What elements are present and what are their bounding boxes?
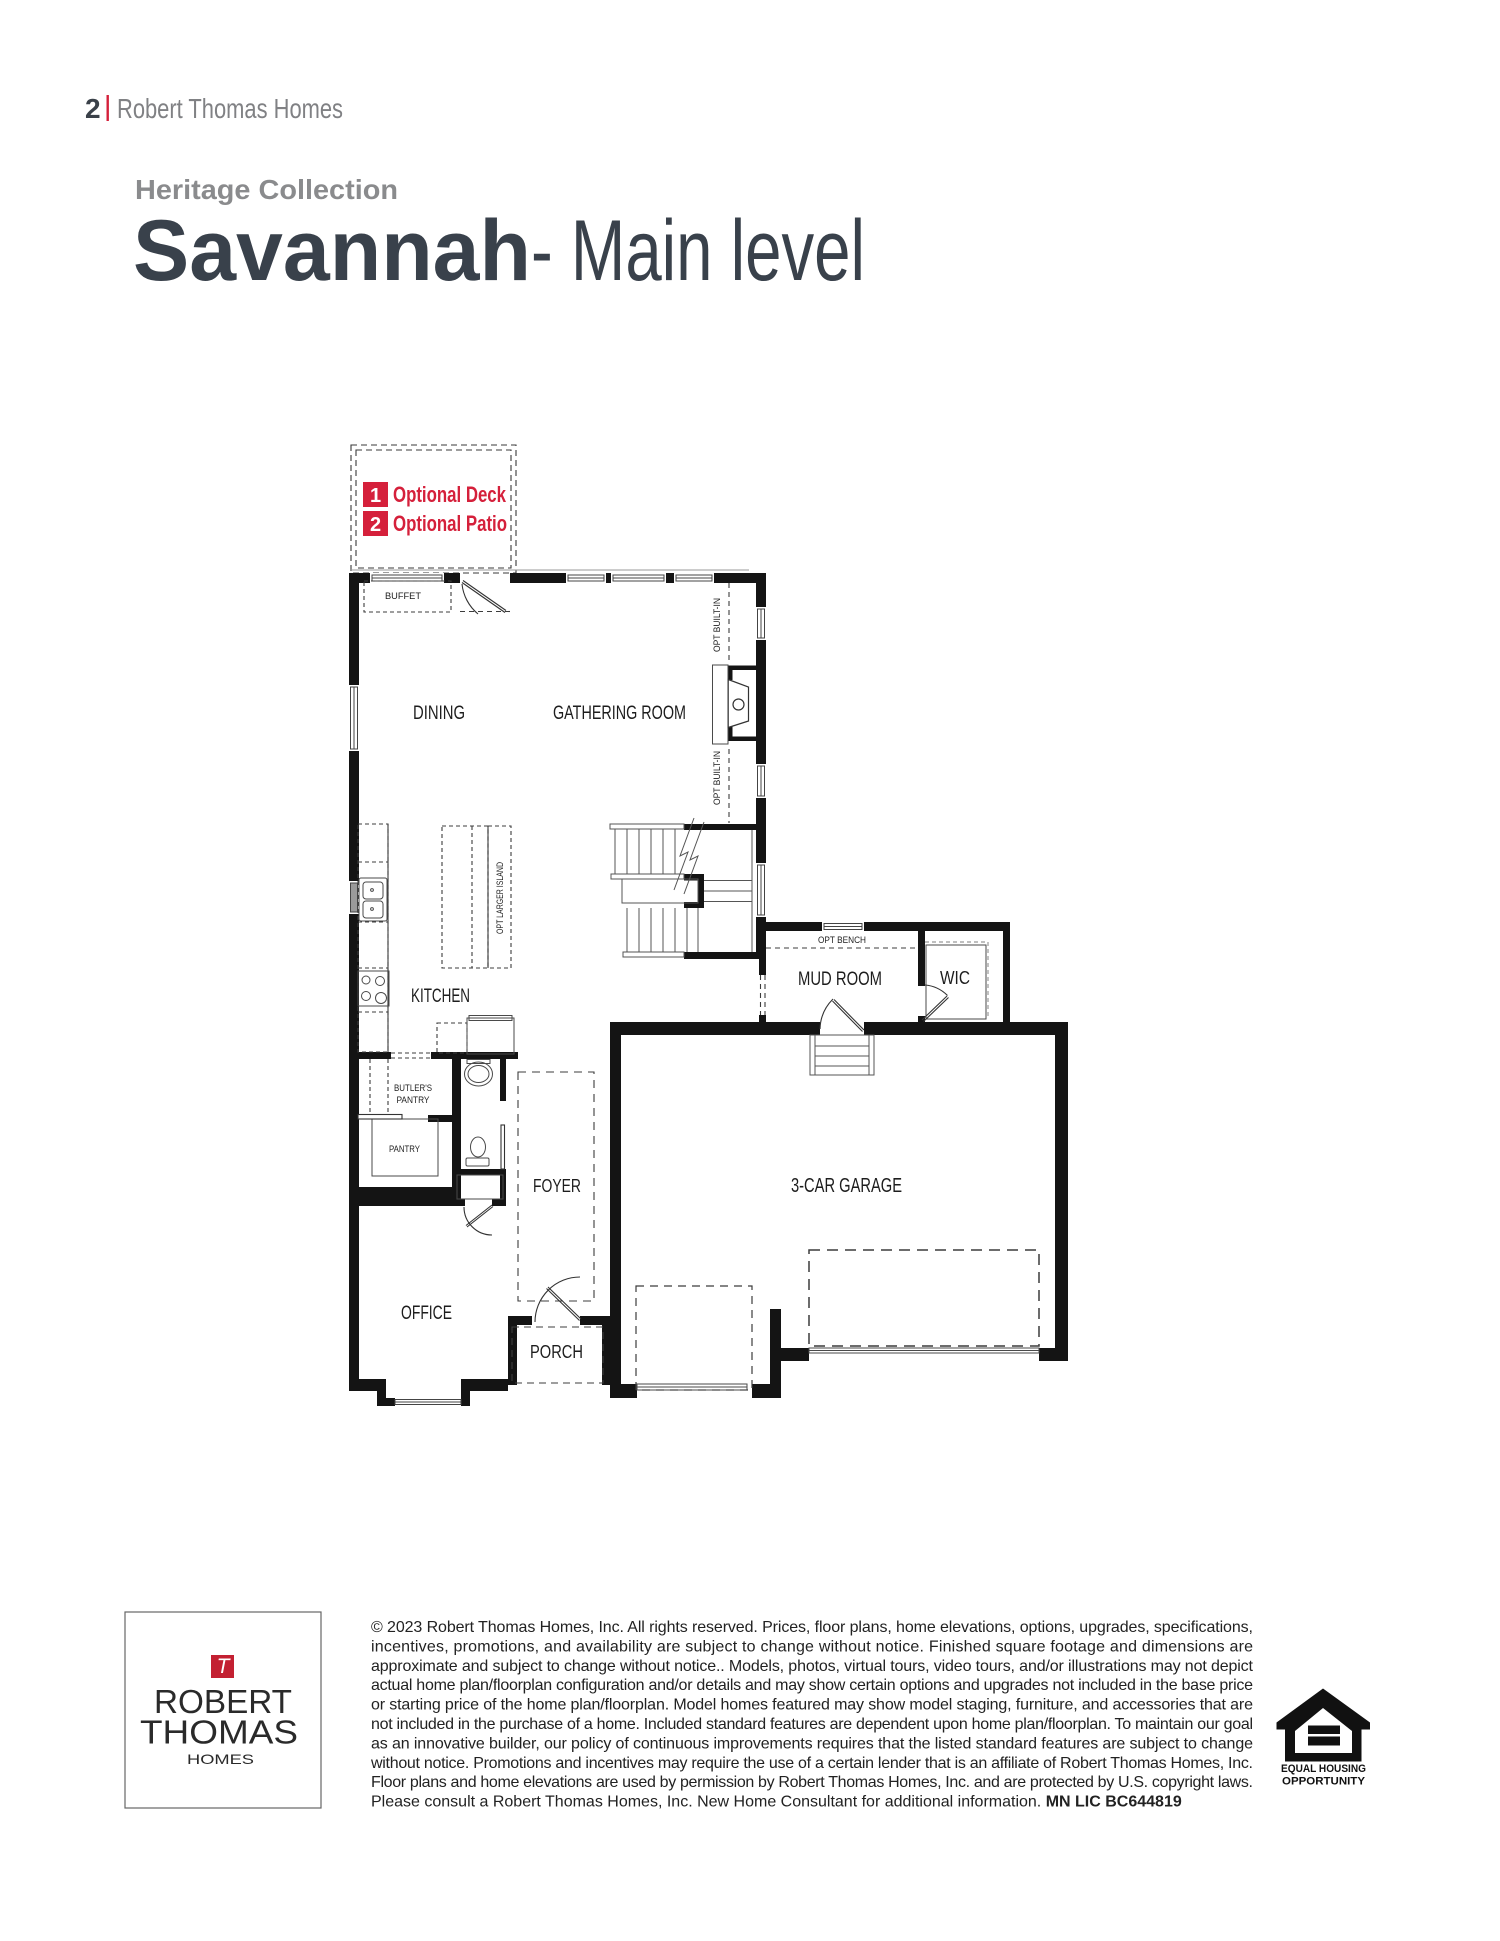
svg-text:FOYER: FOYER (533, 1176, 581, 1196)
svg-text:Optional Deck: Optional Deck (393, 482, 507, 507)
svg-text:© 2023 Robert Thomas Homes, In: © 2023 Robert Thomas Homes, Inc. All rig… (371, 1619, 1253, 1636)
svg-text:PANTRY: PANTRY (397, 1095, 430, 1105)
svg-text:T: T (217, 1655, 232, 1678)
svg-text:OPT BUILT-IN: OPT BUILT-IN (712, 751, 723, 805)
svg-text:2: 2 (370, 514, 381, 536)
svg-text:BUTLER'S: BUTLER'S (394, 1083, 432, 1093)
svg-text:Heritage Collection: Heritage Collection (135, 174, 398, 205)
svg-text:OFFICE: OFFICE (401, 1303, 452, 1324)
svg-text:KITCHEN: KITCHEN (411, 986, 470, 1007)
svg-text:OPT BENCH: OPT BENCH (818, 935, 866, 946)
svg-text:PANTRY: PANTRY (389, 1144, 421, 1155)
svg-text:WIC: WIC (940, 968, 970, 988)
svg-text:Floor plans and home elevation: Floor plans and home elevations are used… (371, 1774, 1253, 1791)
svg-text:OPPORTUNITY: OPPORTUNITY (1282, 1776, 1366, 1788)
svg-text:THOMAS: THOMAS (140, 1714, 298, 1751)
svg-text:OPT BUILT-IN: OPT BUILT-IN (712, 598, 723, 652)
svg-text:BUFFET: BUFFET (385, 591, 422, 601)
svg-text:MUD ROOM: MUD ROOM (798, 969, 882, 990)
svg-text:2: 2 (85, 93, 101, 124)
svg-text:Optional Patio: Optional Patio (393, 511, 507, 536)
svg-text:PORCH: PORCH (530, 1342, 583, 1362)
svg-text:1: 1 (370, 485, 381, 507)
svg-text:GATHERING ROOM: GATHERING ROOM (553, 703, 686, 724)
svg-text:as an innovative builder, our: as an innovative builder, our policy of … (371, 1735, 1253, 1752)
svg-text:actual home plan/floorplan con: actual home plan/floorplan configuration… (371, 1677, 1253, 1694)
svg-text:- Main level: - Main level (531, 203, 865, 299)
svg-text:Savannah: Savannah (133, 203, 531, 299)
svg-text:not included in the purchase o: not included in the purchase of a home. … (371, 1716, 1253, 1733)
svg-text:approximate and subject to cha: approximate and subject to change withou… (371, 1658, 1254, 1675)
svg-text:without notice. Promotions and: without notice. Promotions and incentive… (370, 1755, 1253, 1772)
svg-text:DINING: DINING (413, 703, 465, 724)
svg-text:Please consult a Robert Thomas: Please consult a Robert Thomas Homes, In… (371, 1794, 1182, 1811)
svg-text:Robert Thomas Homes: Robert Thomas Homes (117, 93, 343, 124)
svg-text:or starting price of the home: or starting price of the home plan/floor… (371, 1697, 1253, 1714)
svg-text:3-CAR GARAGE: 3-CAR GARAGE (791, 1175, 902, 1197)
svg-text:EQUAL HOUSING: EQUAL HOUSING (1281, 1763, 1366, 1775)
svg-text:incentives, promotions, and av: incentives, promotions, and availability… (371, 1638, 1253, 1655)
svg-text:HOMES: HOMES (187, 1751, 254, 1767)
svg-text:OPT LARGER ISLAND: OPT LARGER ISLAND (495, 862, 506, 934)
